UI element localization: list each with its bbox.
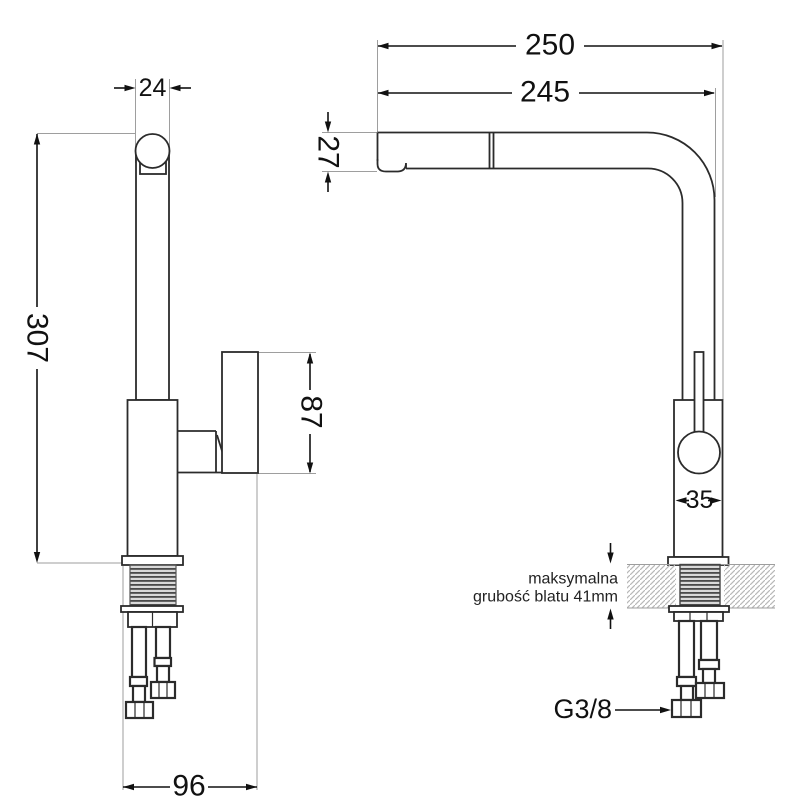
dim-label-handle-height: 87 (295, 395, 328, 428)
side-faucet-body (668, 352, 729, 565)
counter-thickness-note-line1: maksymalna (528, 571, 618, 588)
front-stem (136, 151, 169, 400)
front-view: 24 307 87 96 (21, 74, 328, 800)
spout-inner-curve (406, 169, 683, 401)
dim-label-base-width: 96 (172, 770, 205, 800)
side-washer (669, 606, 729, 612)
dim-label-total-height: 307 (21, 313, 54, 363)
dim-label-total-reach: 250 (525, 29, 575, 62)
counter-thickness-note-line2: grubość blatu 41mm (473, 589, 618, 606)
faucet-technical-drawing: 24 307 87 96 (0, 0, 800, 800)
side-spout (378, 133, 715, 401)
front-handle (222, 352, 258, 473)
hose-thread-label: G3/8 (553, 694, 612, 724)
side-hose-nut-left (672, 700, 701, 717)
dim-label-spout-width: 24 (139, 74, 167, 102)
countertop-section (627, 565, 775, 622)
front-base-flange (122, 556, 183, 565)
side-mounting-thread (680, 565, 720, 609)
side-view: 250 245 27 35 maksymalna grubość blatu 4… (312, 29, 776, 725)
front-faucet-body (121, 134, 258, 627)
front-handle-connector (178, 431, 228, 473)
front-supply-hoses (126, 627, 175, 718)
countertop-hatch-right (724, 565, 775, 609)
drawing-canvas: 24 307 87 96 (0, 0, 800, 800)
dim-label-body-width: 35 (686, 486, 714, 514)
front-body (128, 400, 178, 556)
spout-aerator-tip (378, 159, 407, 172)
countertop-hatch-left (627, 565, 676, 609)
side-lever-ball (678, 432, 720, 474)
side-dimensions (325, 43, 723, 713)
front-washer (121, 606, 183, 612)
front-mounting-thread (130, 565, 176, 606)
side-supply-hoses (672, 621, 724, 717)
side-lever-rod (695, 352, 704, 432)
side-mounting-nut (674, 612, 723, 621)
dim-label-spout-reach: 245 (520, 76, 570, 109)
dim-label-spout-tip-height: 27 (312, 135, 345, 168)
front-hose-nut-left (126, 702, 153, 718)
side-hose-nut-right (696, 683, 724, 698)
front-hose-nut-right (151, 682, 175, 698)
side-base-flange (668, 557, 729, 565)
front-spray-head-ball (136, 134, 170, 168)
